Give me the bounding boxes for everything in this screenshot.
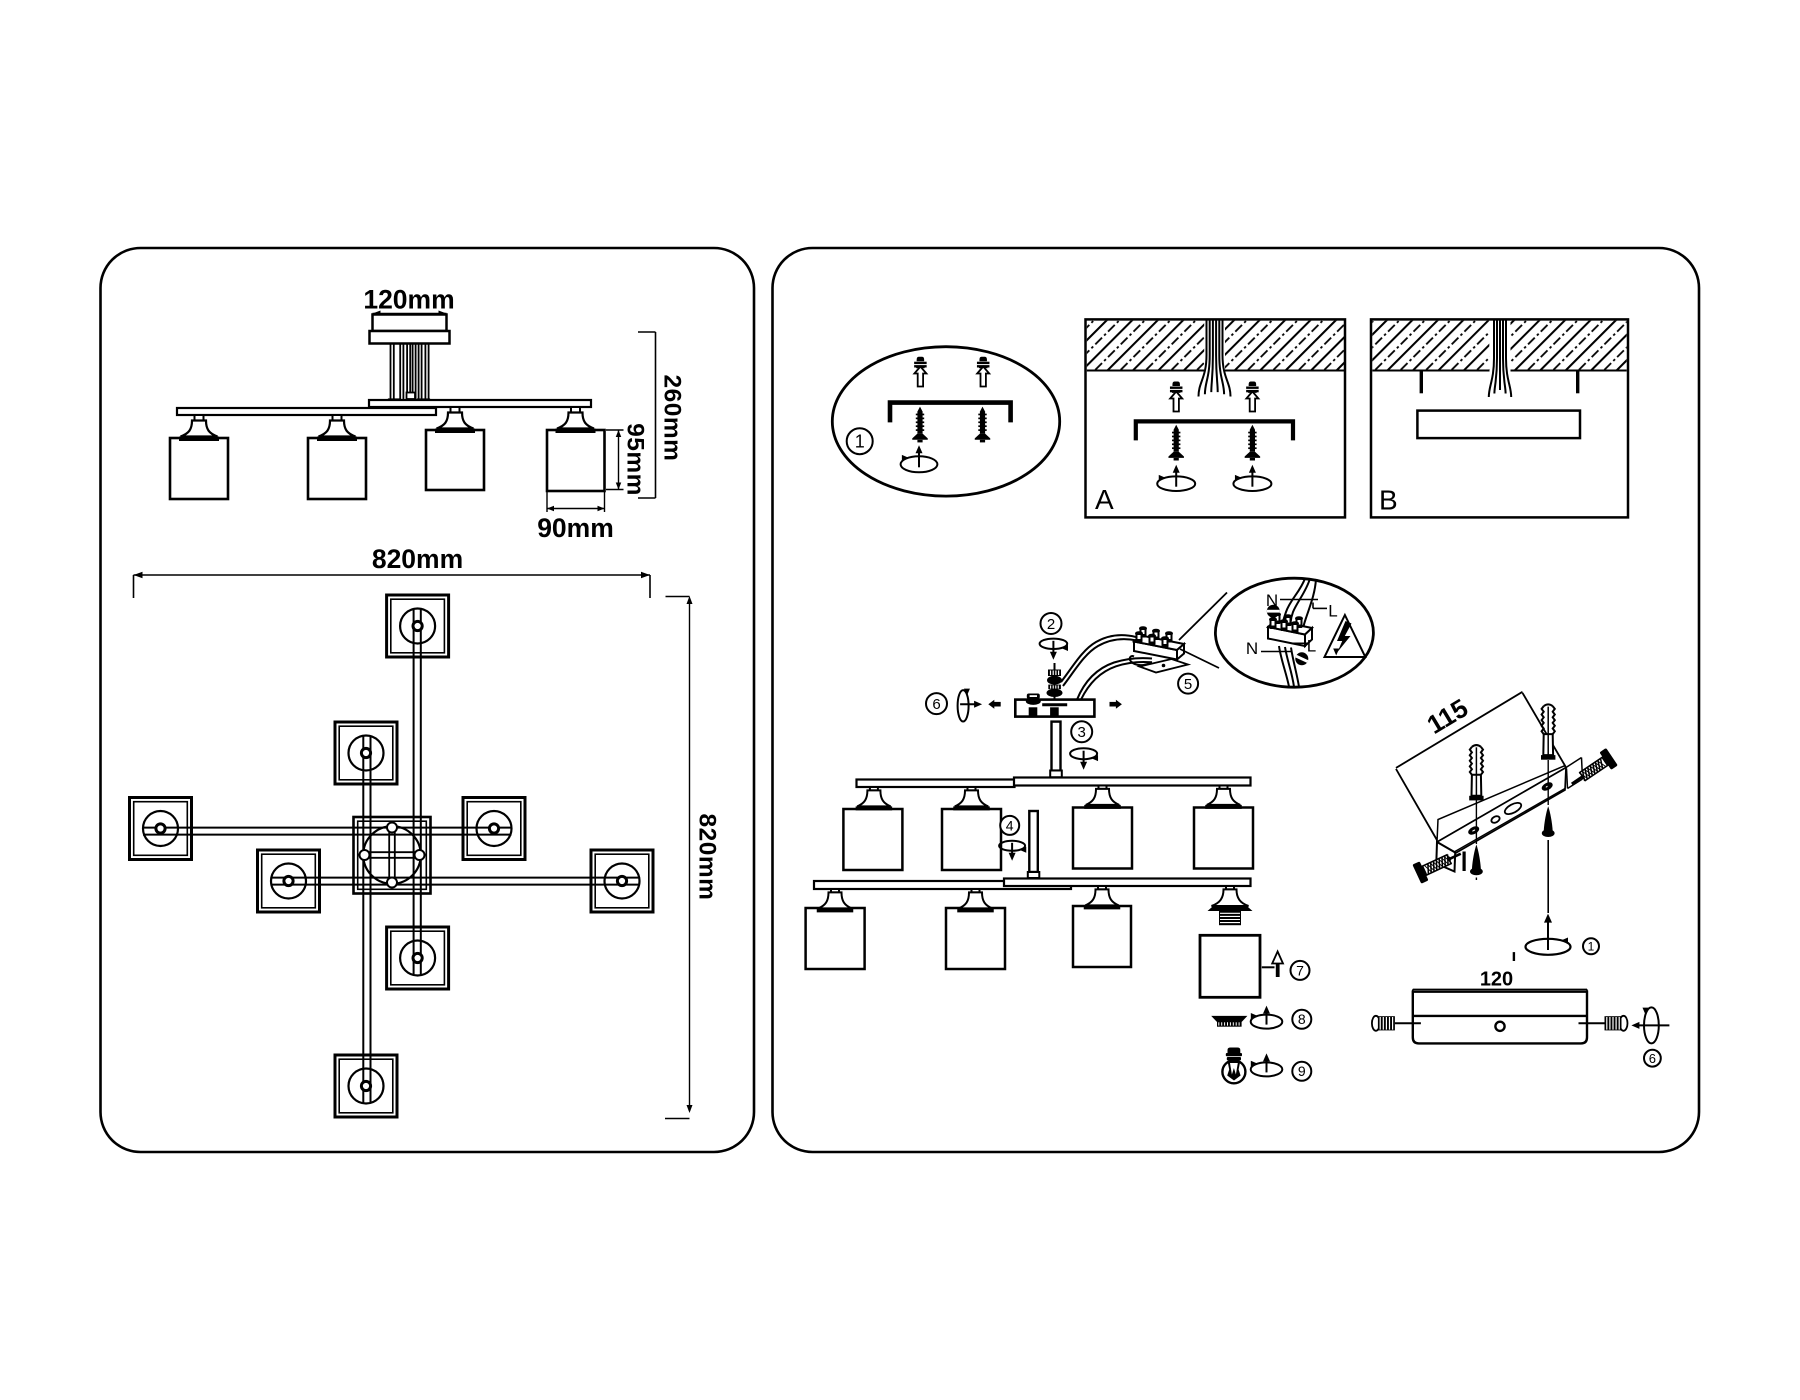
svg-text:2: 2 — [1047, 616, 1055, 633]
svg-text:L: L — [1307, 637, 1316, 656]
svg-text:A: A — [1095, 484, 1114, 515]
svg-text:9: 9 — [1298, 1063, 1306, 1079]
svg-text:6: 6 — [932, 696, 940, 713]
svg-text:L: L — [1328, 602, 1337, 621]
svg-text:1: 1 — [855, 432, 865, 452]
svg-text:820mm: 820mm — [372, 544, 463, 574]
svg-text:8: 8 — [1298, 1011, 1306, 1027]
svg-text:3: 3 — [1078, 724, 1086, 741]
svg-text:260mm: 260mm — [659, 375, 686, 462]
svg-text:4: 4 — [1006, 817, 1014, 833]
svg-text:120mm: 120mm — [363, 285, 454, 315]
svg-text:7: 7 — [1296, 962, 1304, 978]
svg-text:820mm: 820mm — [694, 814, 721, 901]
svg-text:5: 5 — [1184, 676, 1192, 693]
svg-text:120: 120 — [1480, 969, 1513, 991]
svg-text:90mm: 90mm — [537, 513, 614, 543]
svg-text:95mm: 95mm — [622, 423, 649, 496]
svg-text:B: B — [1379, 485, 1398, 516]
svg-text:N: N — [1246, 639, 1258, 658]
svg-text:6: 6 — [1649, 1051, 1656, 1066]
svg-text:1: 1 — [1588, 940, 1595, 954]
